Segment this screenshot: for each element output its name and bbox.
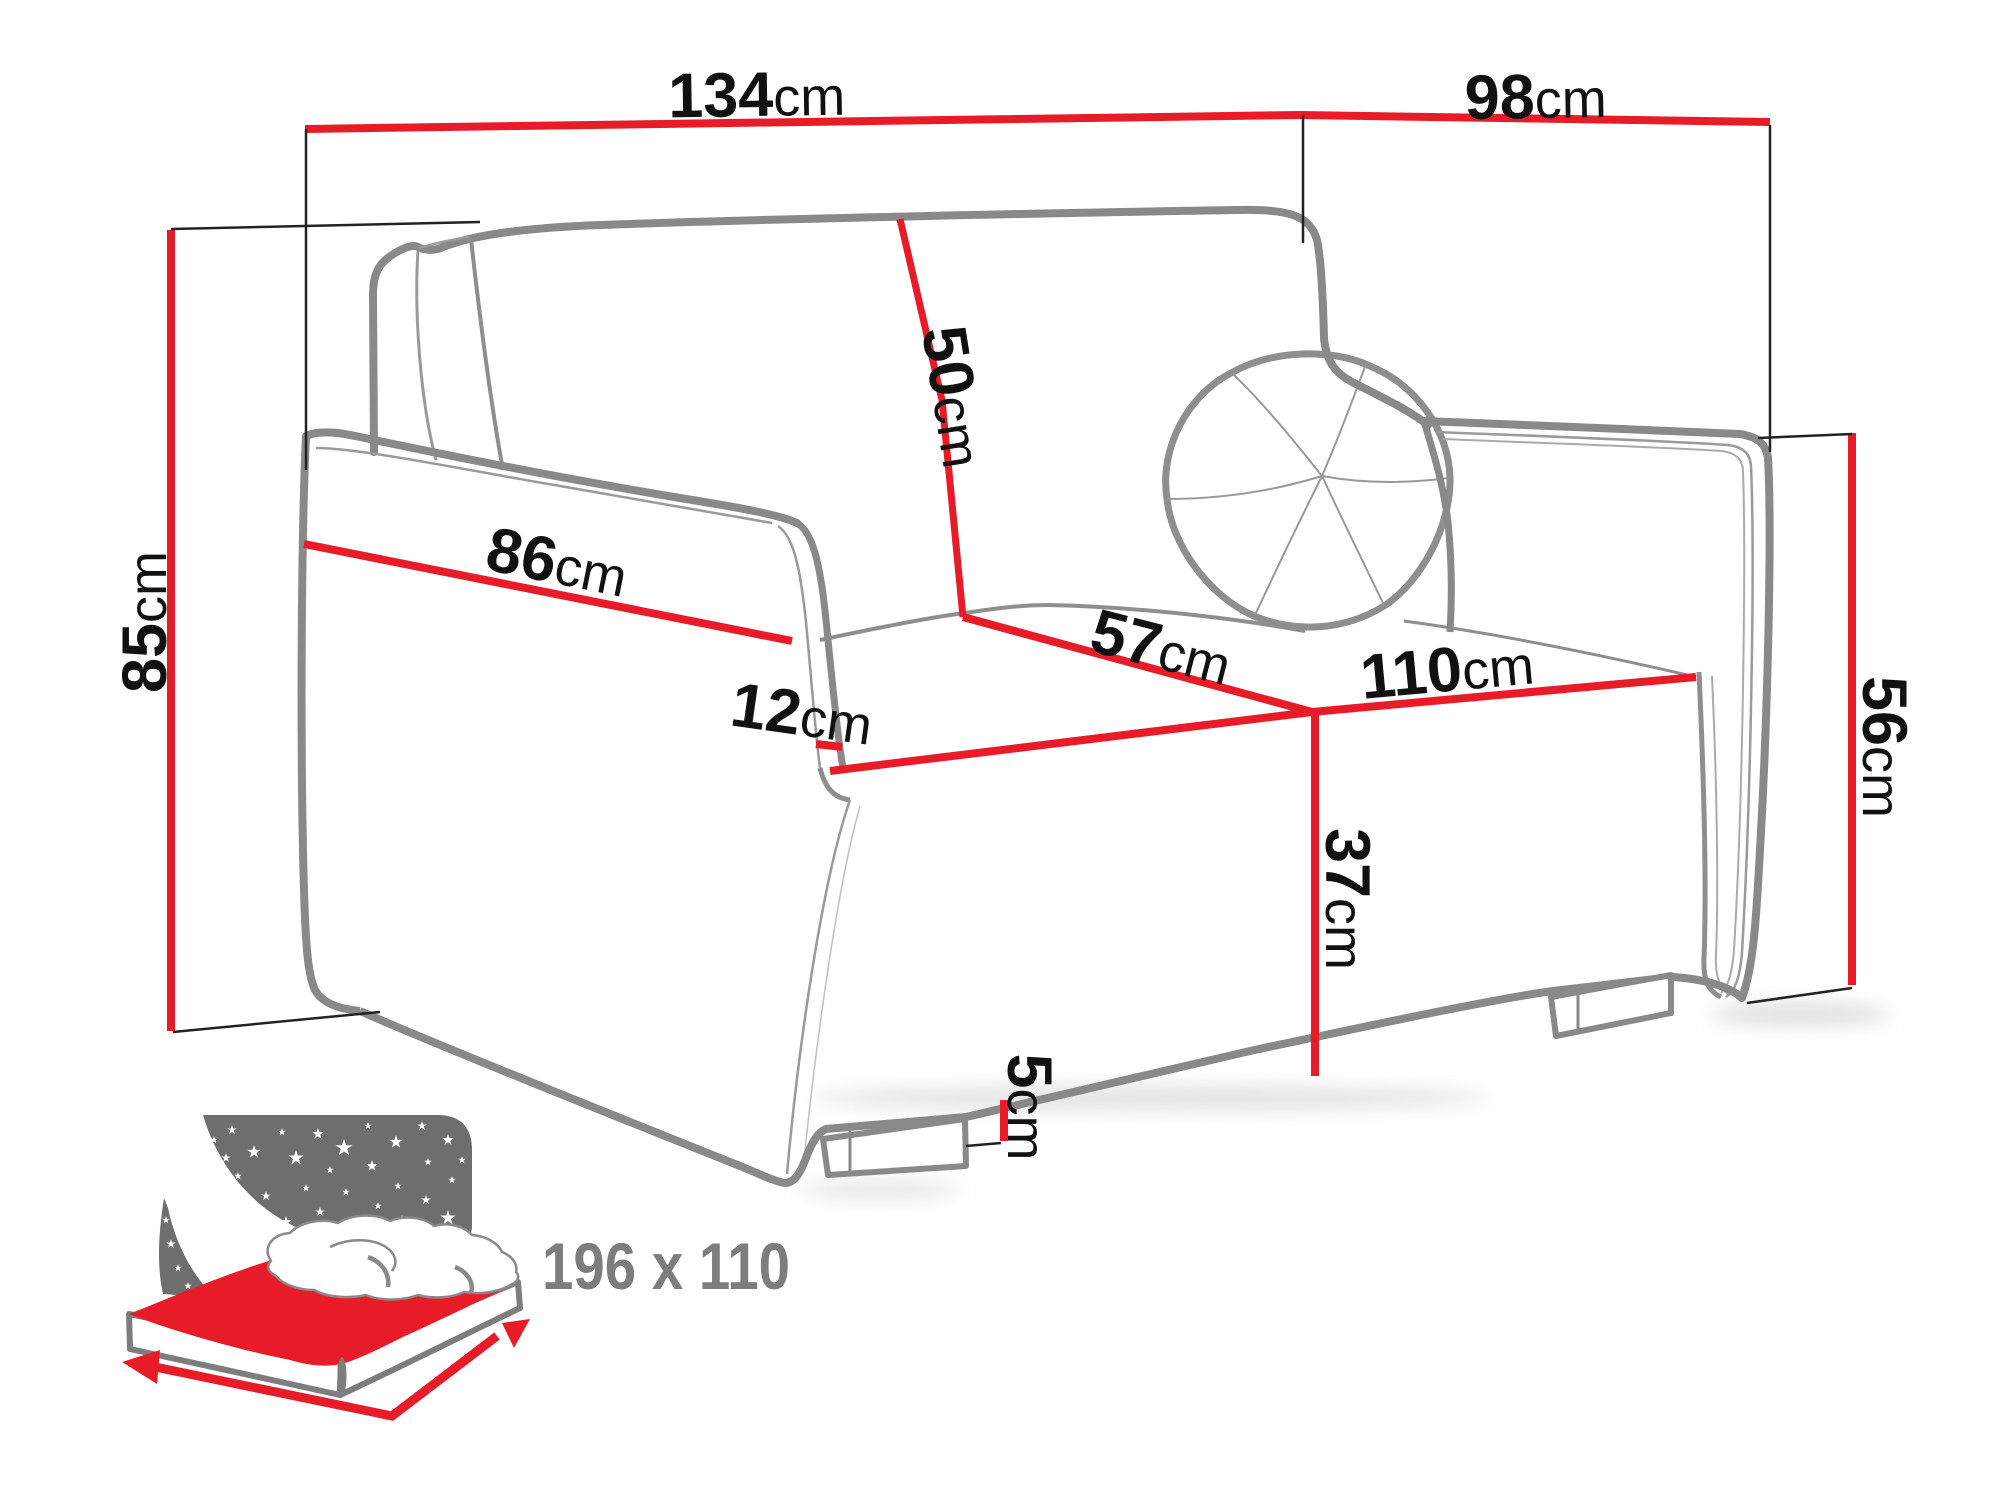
svg-text:134cm: 134cm (668, 59, 846, 132)
svg-text:196 x 110: 196 x 110 (542, 1229, 790, 1303)
svg-text:56cm: 56cm (1849, 676, 1919, 818)
svg-text:98cm: 98cm (1464, 61, 1607, 133)
svg-text:85cm: 85cm (110, 551, 180, 693)
svg-text:5cm: 5cm (994, 1053, 1064, 1160)
svg-text:37cm: 37cm (1312, 828, 1382, 970)
